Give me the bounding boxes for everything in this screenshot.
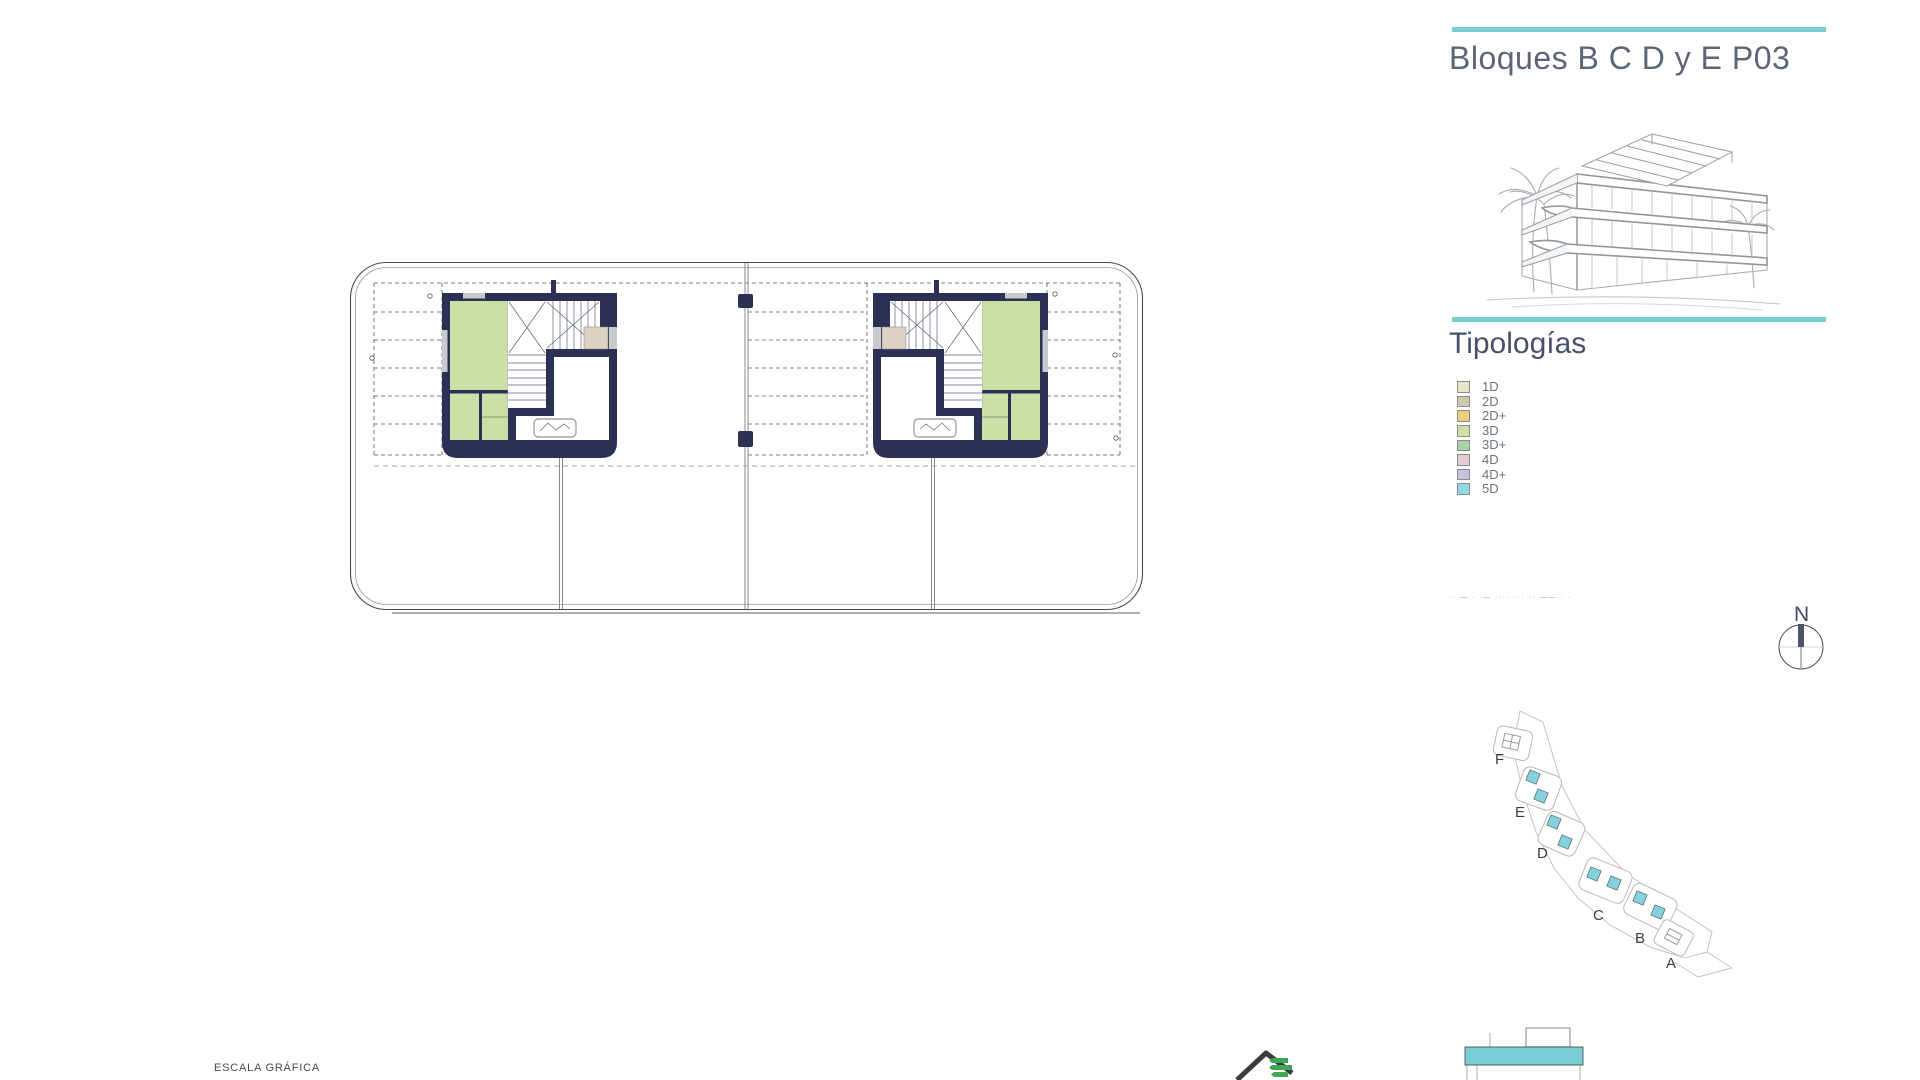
legend-label: 4D xyxy=(1482,454,1499,466)
legend-swatch xyxy=(1457,381,1470,393)
legend-label: 3D xyxy=(1482,425,1499,437)
compass-needle xyxy=(1798,624,1804,647)
legend-item: 4D+ xyxy=(1457,469,1506,481)
legend-swatch xyxy=(1457,440,1470,452)
block-label-e: E xyxy=(1515,804,1525,821)
energy-bars-icon xyxy=(1269,1058,1292,1077)
floorplan-sheet: { "title": "Bloques B C D y E P03", "sec… xyxy=(0,0,1920,1080)
legend-label: 1D xyxy=(1482,381,1499,393)
fine-print-note: ·· — · ·— ···· ··· ·· ——·· · xyxy=(1449,594,1589,601)
unit-right xyxy=(873,280,1048,458)
energy-house-logo xyxy=(1222,1042,1312,1080)
legend-item: 1D xyxy=(1457,381,1506,393)
block-label-d: D xyxy=(1537,845,1548,862)
tipologias-heading: Tipologías xyxy=(1449,327,1586,361)
block-label-a: A xyxy=(1666,955,1676,972)
legend-swatch xyxy=(1457,396,1470,408)
legend-swatch xyxy=(1457,483,1470,495)
legend-swatch xyxy=(1457,425,1470,437)
accent-rule-mid xyxy=(1452,317,1826,322)
north-compass: N xyxy=(1770,595,1840,680)
legend-item: 4D xyxy=(1457,454,1506,466)
legend-label: 4D+ xyxy=(1482,469,1506,481)
legend-swatch xyxy=(1457,410,1470,422)
highlighted-floor-bar xyxy=(1465,1047,1583,1065)
typology-legend: 1D2D2D+3D3D+4D4D+5D xyxy=(1457,381,1506,495)
block-label-f: F xyxy=(1495,751,1504,768)
unit-left xyxy=(442,280,617,458)
page-title: Bloques B C D y E P03 xyxy=(1449,40,1790,77)
section-key xyxy=(1450,1000,1670,1080)
legend-item: 3D+ xyxy=(1457,439,1506,451)
legend-label: 2D xyxy=(1482,396,1499,408)
legend-item: 5D xyxy=(1457,483,1506,495)
block-label-c: C xyxy=(1593,907,1604,924)
legend-item: 3D xyxy=(1457,425,1506,437)
accent-rule-top xyxy=(1452,27,1826,32)
legend-label: 2D+ xyxy=(1482,410,1506,422)
north-label: N xyxy=(1794,603,1809,626)
floor-plan-drawing xyxy=(340,250,1150,620)
block-label-b: B xyxy=(1635,930,1645,947)
site-key-plan: FEDCBA xyxy=(1460,700,1780,1000)
legend-swatch xyxy=(1457,454,1470,466)
scale-bar-label: ESCALA GRÁFICA xyxy=(214,1062,320,1074)
legend-label: 5D xyxy=(1482,483,1499,495)
legend-item: 2D+ xyxy=(1457,410,1506,422)
legend-item: 2D xyxy=(1457,396,1506,408)
legend-label: 3D+ xyxy=(1482,439,1506,451)
legend-swatch xyxy=(1457,469,1470,481)
building-sketch-image xyxy=(1482,104,1786,314)
